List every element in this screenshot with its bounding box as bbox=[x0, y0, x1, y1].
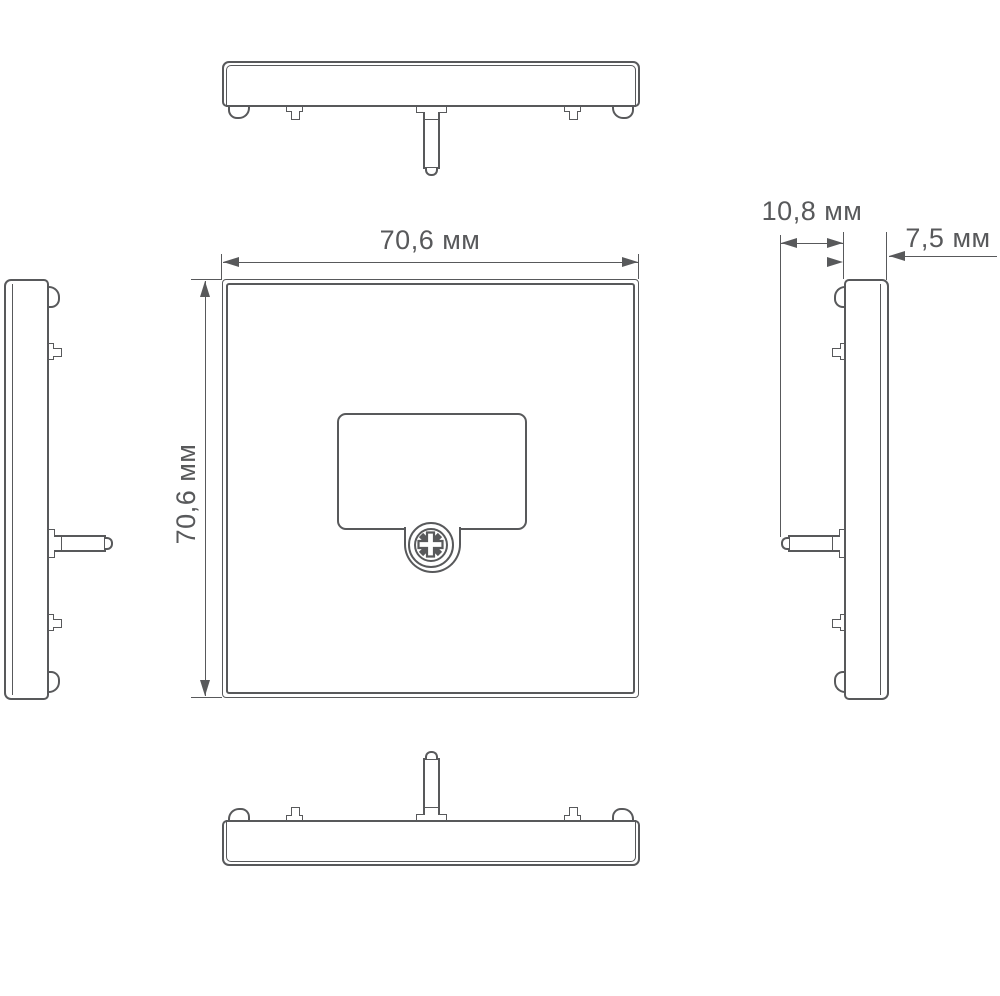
snap-clip bbox=[832, 348, 841, 357]
snap-clip bbox=[291, 807, 300, 816]
mounting-pin bbox=[423, 112, 440, 169]
snap-clip bbox=[291, 111, 300, 120]
mounting-pin-tip bbox=[105, 537, 113, 550]
arrowhead-left bbox=[223, 257, 239, 267]
extension-line bbox=[780, 235, 781, 537]
foot bbox=[48, 671, 60, 693]
dimension-line bbox=[223, 262, 638, 263]
screw-head-inner-ring bbox=[414, 528, 448, 562]
mounting-pin-collar bbox=[425, 807, 438, 808]
dimension-line bbox=[889, 256, 997, 257]
arrowhead-up bbox=[200, 281, 210, 297]
dim-thickness-label: 7,5 мм bbox=[898, 224, 998, 252]
arrowhead-down bbox=[200, 680, 210, 696]
mounting-pin-tip bbox=[781, 537, 789, 550]
dimension-line bbox=[205, 281, 206, 696]
extension-line bbox=[638, 254, 639, 279]
dim-front-width-label: 70,6 мм bbox=[330, 226, 530, 254]
foot bbox=[228, 106, 250, 119]
arrowhead-right bbox=[827, 238, 843, 248]
arrowhead-right bbox=[622, 257, 638, 267]
extension-line bbox=[843, 232, 844, 279]
panel-body bbox=[844, 279, 889, 700]
mounting-pin-collar bbox=[61, 537, 62, 550]
arrowhead-inner bbox=[827, 257, 843, 267]
panel-face-line bbox=[226, 65, 636, 107]
extension-line bbox=[191, 697, 222, 698]
mounting-pin-tip bbox=[425, 751, 438, 759]
snap-clip bbox=[53, 348, 62, 357]
center-recess bbox=[337, 413, 527, 530]
foot bbox=[48, 286, 60, 308]
panel-face-line bbox=[226, 820, 636, 862]
dim-pin-depth-label: 10,8 мм bbox=[752, 197, 872, 225]
arrowhead-left bbox=[889, 251, 905, 261]
foot bbox=[612, 106, 634, 119]
arrowhead-left bbox=[781, 238, 797, 248]
screw-pozidriv-icon bbox=[416, 530, 445, 559]
panel-body bbox=[4, 279, 49, 700]
extension-line bbox=[191, 279, 222, 280]
mounting-pin-collar bbox=[832, 537, 833, 550]
mounting-pin-tip bbox=[425, 168, 438, 176]
panel-face-line bbox=[880, 284, 881, 695]
extension-line bbox=[886, 232, 887, 280]
snap-clip bbox=[53, 619, 62, 628]
extension-line bbox=[221, 254, 222, 279]
snap-clip bbox=[569, 111, 578, 120]
snap-clip bbox=[569, 807, 578, 816]
technical-drawing: 70,6 мм 70,6 мм 10,8 мм 7,5 мм bbox=[0, 0, 1000, 996]
snap-clip bbox=[832, 619, 841, 628]
dim-front-height-label: 70,6 мм bbox=[172, 434, 200, 554]
mounting-pin-collar bbox=[425, 119, 438, 120]
panel-face-line bbox=[12, 284, 13, 695]
